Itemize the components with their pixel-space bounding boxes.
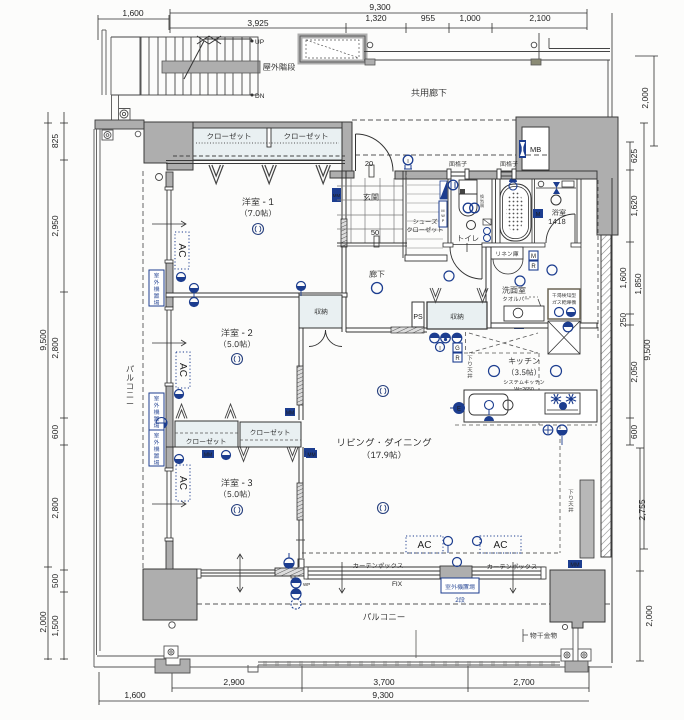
svg-text:500: 500 (50, 574, 60, 588)
svg-text:AC: AC (177, 363, 188, 377)
svg-text:9,300: 9,300 (372, 690, 394, 700)
svg-text:9,300: 9,300 (369, 2, 391, 12)
svg-text:2,000: 2,000 (38, 611, 48, 633)
svg-text:3,925: 3,925 (247, 18, 269, 28)
svg-text:825: 825 (50, 134, 60, 148)
svg-text:2,800: 2,800 (50, 497, 60, 519)
svg-text:2,050: 2,050 (629, 361, 639, 383)
svg-text:W: W (441, 214, 445, 218)
svg-text:MM: MM (333, 193, 341, 198)
svg-text:1,620: 1,620 (629, 195, 639, 217)
svg-text:PS: PS (413, 314, 423, 321)
svg-text:3,700: 3,700 (373, 677, 395, 687)
svg-text:AC: AC (176, 244, 187, 258)
svg-text:M: M (531, 254, 536, 260)
svg-text:DN: DN (255, 93, 265, 100)
svg-text:R: R (531, 264, 536, 270)
svg-text:2,755: 2,755 (637, 499, 647, 521)
svg-text:UP: UP (255, 39, 264, 46)
svg-text:9,500: 9,500 (642, 339, 652, 361)
svg-text:AC: AC (177, 476, 188, 490)
svg-text:AC: AC (494, 540, 508, 551)
svg-text:2,950: 2,950 (50, 215, 60, 237)
svg-text:600: 600 (50, 425, 60, 439)
svg-text:2,000: 2,000 (640, 87, 650, 109)
svg-text:1,320: 1,320 (365, 13, 387, 23)
svg-text:1,000: 1,000 (459, 13, 481, 23)
svg-text:AC: AC (418, 540, 432, 551)
svg-text:E: E (457, 407, 461, 413)
svg-text:2,900: 2,900 (223, 677, 245, 687)
svg-text:FIX: FIX (392, 581, 403, 588)
svg-text:2,800: 2,800 (50, 337, 60, 359)
svg-text:2,100: 2,100 (529, 13, 551, 23)
svg-text:P: P (442, 219, 445, 223)
svg-text:M: M (441, 209, 444, 213)
svg-text:1,600: 1,600 (124, 690, 146, 700)
svg-text:2,000: 2,000 (644, 605, 654, 627)
svg-text:600: 600 (629, 425, 639, 439)
svg-text:1,850: 1,850 (633, 273, 643, 295)
svg-text:MB: MB (530, 145, 541, 154)
svg-text:G: G (455, 346, 460, 352)
svg-text:M: M (536, 212, 541, 218)
svg-text:1,600: 1,600 (122, 8, 144, 18)
svg-text:1,500: 1,500 (50, 615, 60, 637)
svg-text:MM: MM (204, 453, 212, 459)
svg-text:2,700: 2,700 (513, 677, 535, 687)
svg-text:WP: WP (303, 582, 310, 587)
svg-text:955: 955 (421, 13, 435, 23)
svg-text:MM: MM (307, 453, 315, 459)
svg-text:9,500: 9,500 (38, 329, 48, 351)
svg-text:MM: MM (286, 411, 294, 417)
svg-text:625: 625 (629, 149, 639, 163)
svg-text:MM: MM (570, 563, 580, 569)
svg-text:250: 250 (618, 313, 628, 327)
svg-text:R: R (455, 356, 460, 362)
svg-text:1,600: 1,600 (618, 267, 628, 289)
